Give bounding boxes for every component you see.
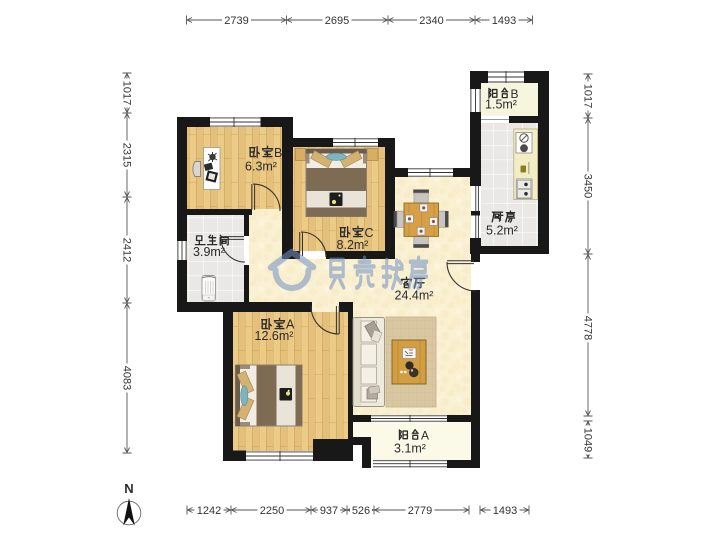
svg-text:3.1m²: 3.1m² bbox=[394, 442, 426, 456]
svg-text:1242: 1242 bbox=[197, 505, 221, 517]
svg-text:1017: 1017 bbox=[582, 84, 594, 108]
svg-text:2250: 2250 bbox=[260, 505, 284, 517]
svg-text:2779: 2779 bbox=[408, 505, 432, 517]
svg-text:1.5m²: 1.5m² bbox=[485, 98, 517, 112]
svg-text:2315: 2315 bbox=[121, 143, 133, 167]
svg-text:1017: 1017 bbox=[121, 81, 133, 105]
svg-text:2340: 2340 bbox=[419, 15, 443, 27]
svg-text:4778: 4778 bbox=[582, 316, 594, 340]
svg-text:4083: 4083 bbox=[121, 366, 133, 390]
svg-text:A: A bbox=[421, 429, 429, 443]
svg-text:2739: 2739 bbox=[224, 15, 248, 27]
svg-text:2695: 2695 bbox=[325, 15, 349, 27]
svg-text:937: 937 bbox=[320, 505, 338, 517]
svg-text:526: 526 bbox=[352, 505, 370, 517]
svg-text:24.4m²: 24.4m² bbox=[395, 289, 434, 303]
svg-text:1049: 1049 bbox=[582, 428, 594, 452]
svg-text:5.2m²: 5.2m² bbox=[486, 224, 518, 238]
svg-text:8.2m²: 8.2m² bbox=[337, 238, 369, 252]
svg-text:1493: 1493 bbox=[492, 15, 516, 27]
svg-text:3.9m²: 3.9m² bbox=[193, 245, 225, 259]
svg-text:1493: 1493 bbox=[493, 505, 517, 517]
svg-text:12.6m²: 12.6m² bbox=[255, 329, 294, 343]
svg-text:N: N bbox=[124, 481, 133, 496]
svg-text:2412: 2412 bbox=[121, 238, 133, 262]
svg-text:6.3m²: 6.3m² bbox=[245, 160, 277, 174]
svg-text:B: B bbox=[274, 146, 282, 160]
svg-text:3450: 3450 bbox=[582, 174, 594, 198]
